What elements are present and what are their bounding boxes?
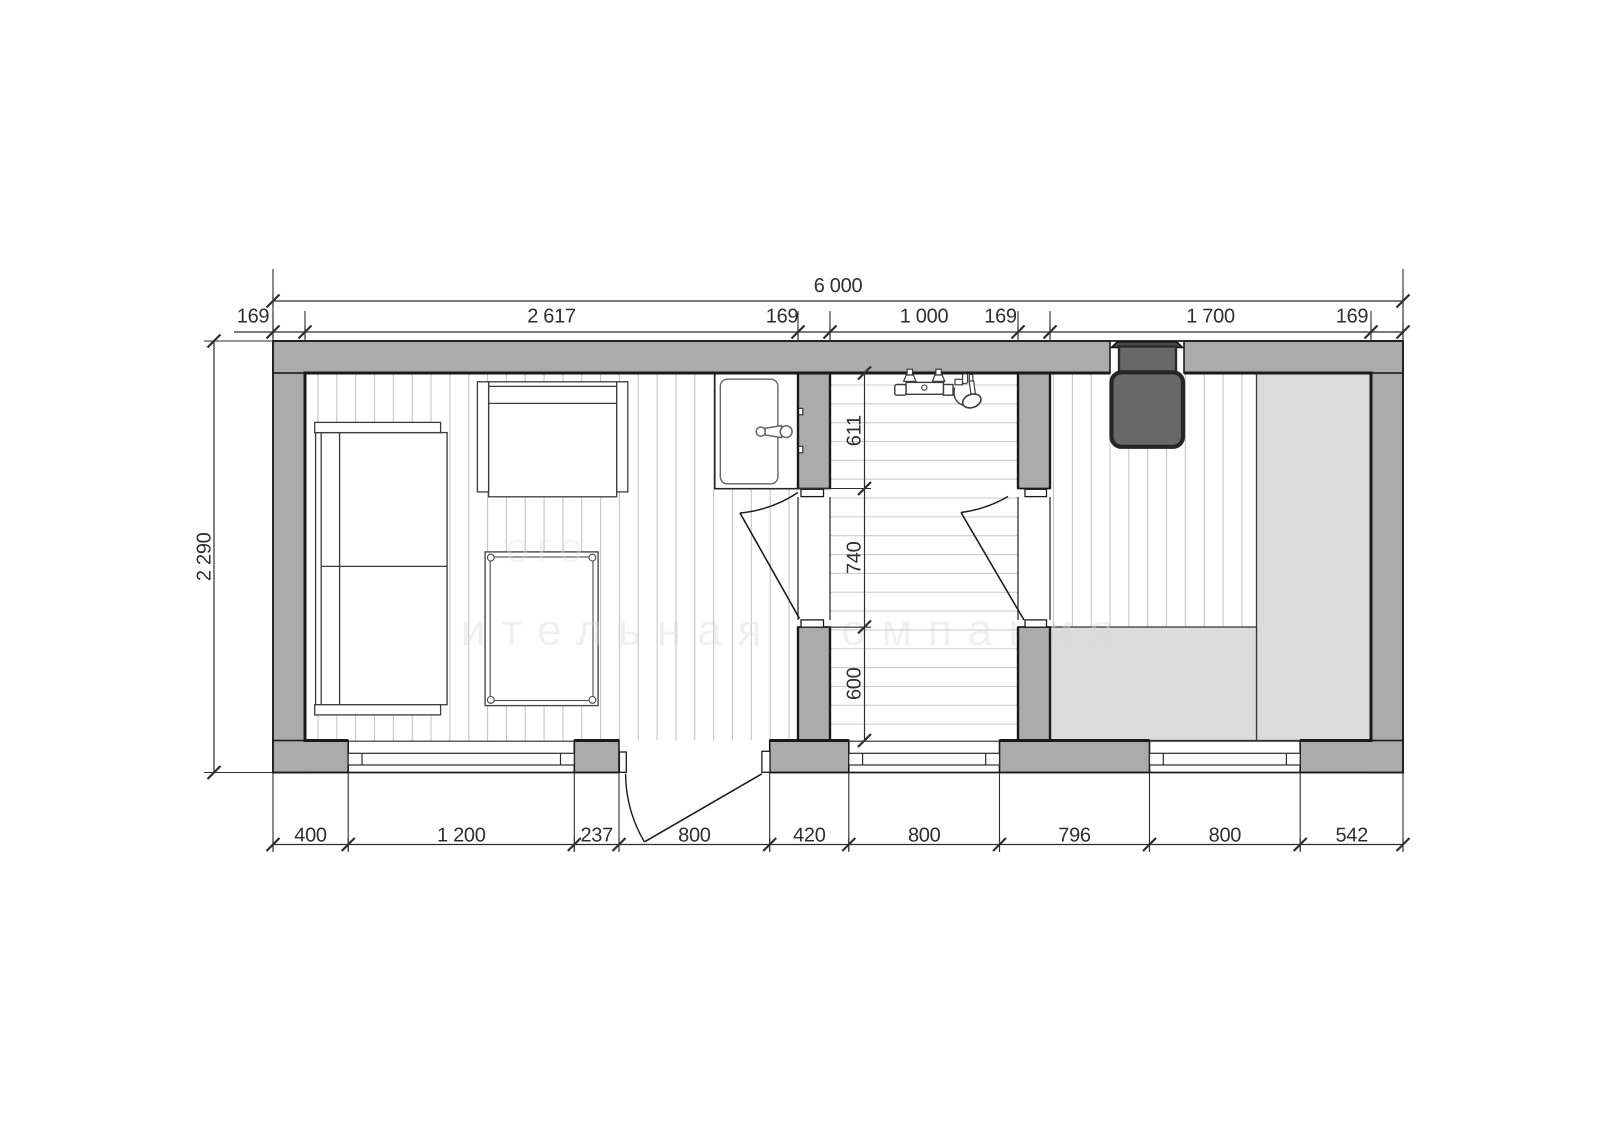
svg-text:611: 611 bbox=[844, 415, 866, 446]
svg-text:1 200: 1 200 bbox=[437, 825, 486, 847]
svg-text:1 700: 1 700 bbox=[1186, 306, 1235, 328]
svg-text:169: 169 bbox=[766, 306, 799, 328]
svg-text:169: 169 bbox=[984, 306, 1017, 328]
svg-text:800: 800 bbox=[678, 825, 711, 847]
svg-text:ого: ого bbox=[505, 524, 590, 571]
svg-text:796: 796 bbox=[1058, 825, 1091, 847]
svg-text:800: 800 bbox=[1209, 825, 1242, 847]
svg-text:400: 400 bbox=[294, 825, 327, 847]
svg-text:420: 420 bbox=[793, 825, 826, 847]
svg-text:1 000: 1 000 bbox=[900, 306, 949, 328]
svg-text:169: 169 bbox=[1336, 306, 1369, 328]
svg-text:6 000: 6 000 bbox=[814, 275, 863, 297]
svg-text:169: 169 bbox=[237, 306, 270, 328]
svg-text:740: 740 bbox=[844, 541, 866, 574]
svg-text:2 617: 2 617 bbox=[527, 306, 576, 328]
svg-text:600: 600 bbox=[844, 667, 866, 700]
svg-text:237: 237 bbox=[580, 825, 613, 847]
svg-text:800: 800 bbox=[908, 825, 941, 847]
svg-text:2 290: 2 290 bbox=[194, 532, 216, 581]
svg-text:542: 542 bbox=[1335, 825, 1368, 847]
